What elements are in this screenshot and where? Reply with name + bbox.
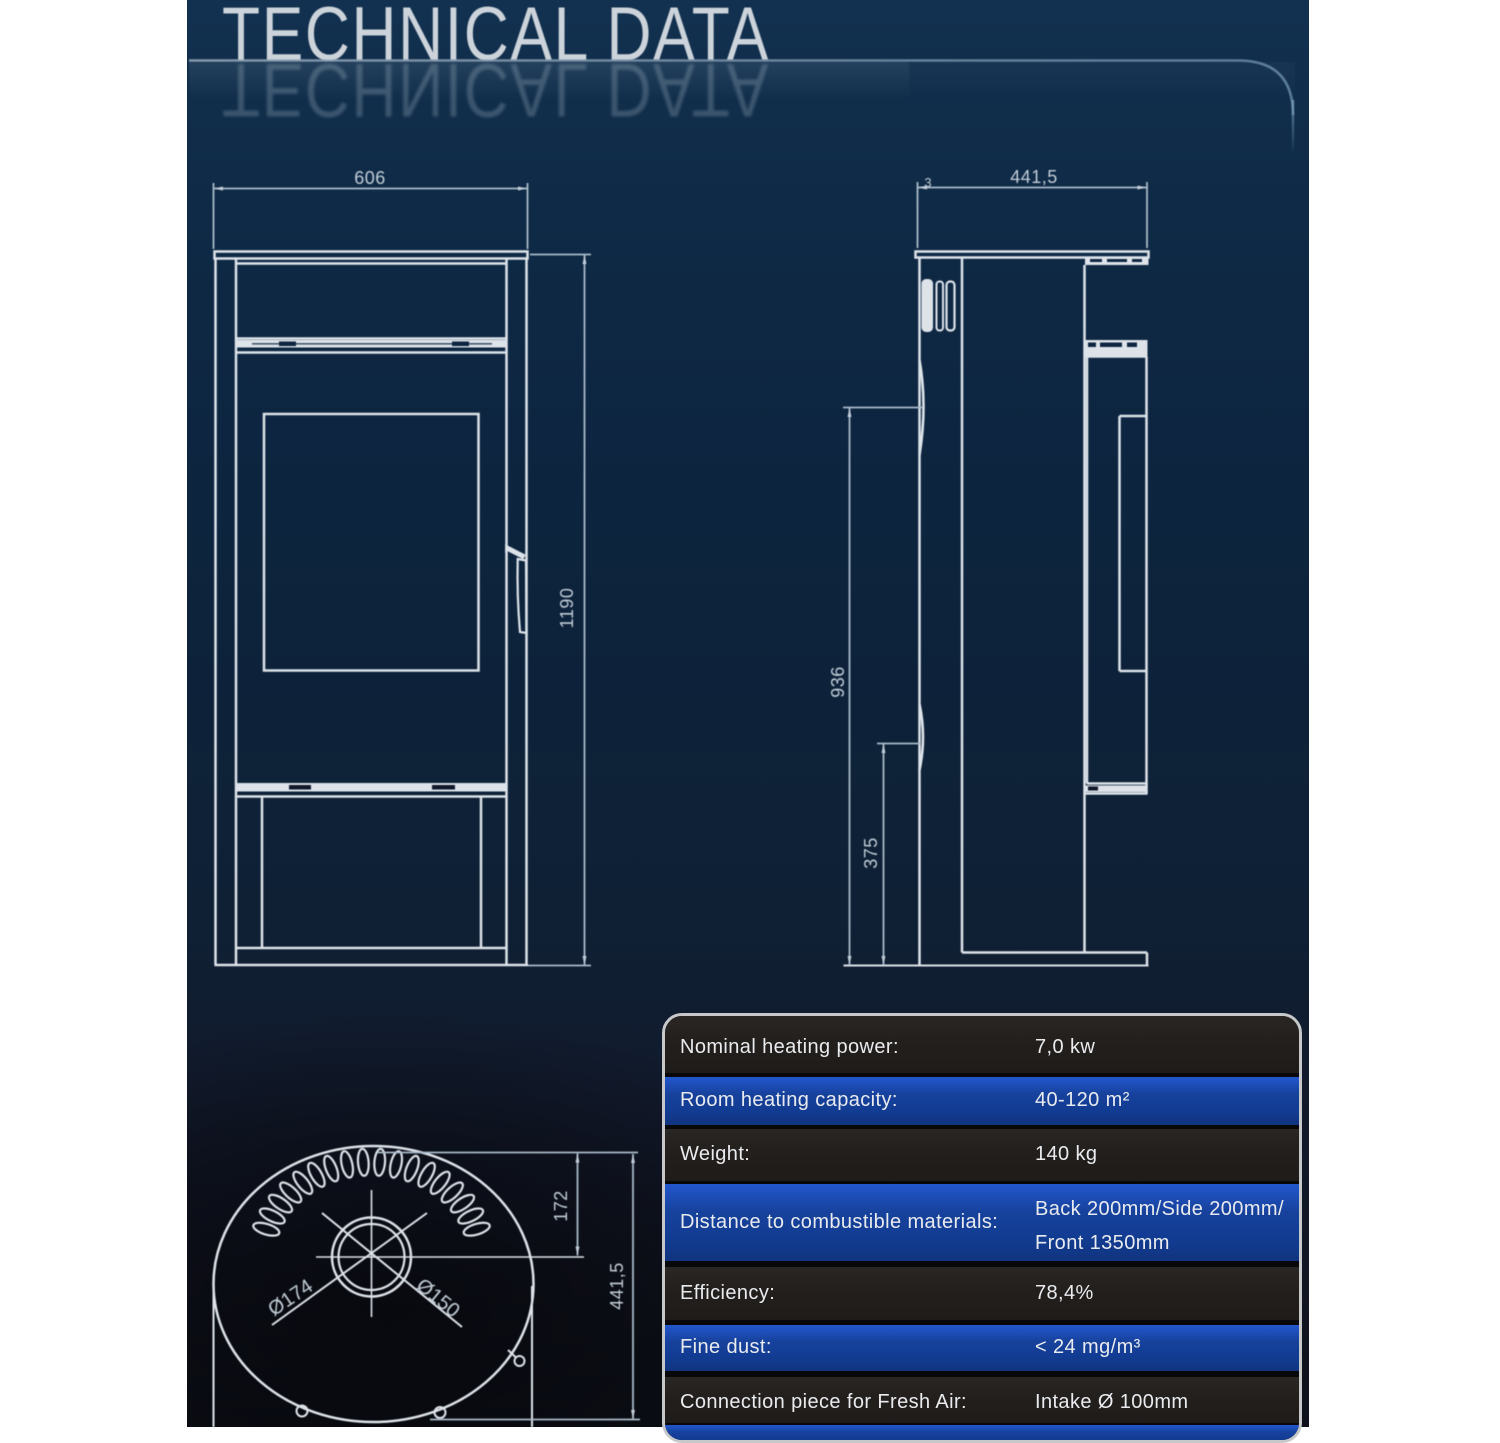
svg-text:606: 606 [354, 168, 386, 188]
svg-text:TECHNICAL DATA: TECHNICAL DATA [222, 0, 770, 77]
svg-text:441,5: 441,5 [607, 1262, 627, 1310]
svg-text:1190: 1190 [557, 588, 577, 629]
svg-text:375: 375 [861, 837, 881, 869]
svg-text:172: 172 [551, 1190, 571, 1222]
svg-text:3: 3 [924, 175, 931, 190]
svg-text:936: 936 [828, 666, 848, 698]
svg-text:Ø174: Ø174 [264, 1275, 317, 1321]
svg-text:Ø150: Ø150 [412, 1274, 464, 1322]
svg-text:441,5: 441,5 [1010, 167, 1058, 187]
